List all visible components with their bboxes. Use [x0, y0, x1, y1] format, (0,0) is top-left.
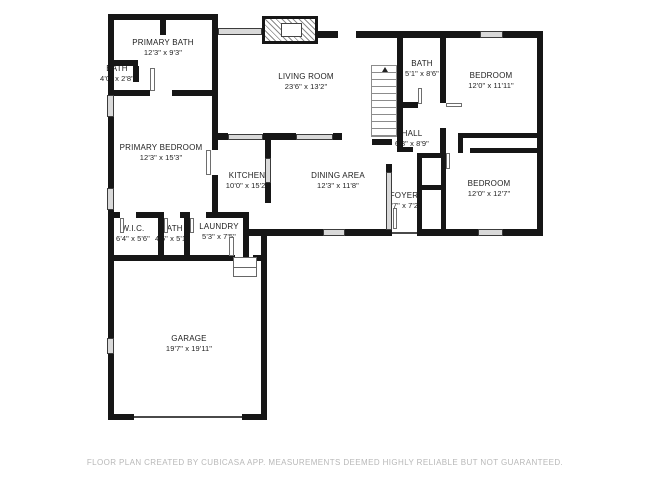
door-leaf	[190, 218, 194, 233]
wall	[537, 31, 543, 236]
garage-steps	[233, 257, 257, 277]
wall	[333, 133, 342, 140]
room-name: LAUNDRY	[199, 222, 239, 232]
wall	[265, 183, 271, 203]
wall	[372, 139, 392, 145]
room-label-bedroom-bottom-right: BEDROOM 12'0" x 12'7"	[468, 179, 511, 199]
window	[107, 188, 114, 210]
door-leaf	[120, 218, 124, 233]
room-dims: 10'0" x 15'2"	[226, 181, 268, 191]
room-label-living-room: LIVING ROOM 23'6" x 13'2"	[278, 72, 334, 92]
wall	[133, 66, 139, 82]
wall	[218, 133, 228, 140]
room-dims: 12'3" x 11'8"	[311, 181, 365, 191]
wall	[108, 90, 150, 96]
room-label-hall-bath: BATH 5'1" x 8'6"	[405, 59, 439, 79]
door-leaf	[446, 103, 462, 107]
wall	[397, 108, 403, 152]
garage-door-line	[134, 416, 242, 418]
staircase	[371, 65, 397, 137]
window	[386, 172, 392, 230]
door-leaf	[150, 68, 155, 91]
door-leaf	[418, 88, 422, 104]
room-name: PRIMARY BEDROOM	[120, 143, 203, 153]
door-leaf	[164, 218, 168, 233]
door-leaf	[229, 237, 234, 256]
window	[480, 31, 503, 38]
footer-disclaimer: FLOOR PLAN CREATED BY CUBICASA APP. MEAS…	[0, 458, 650, 467]
wall	[249, 229, 323, 236]
room-name: GARAGE	[166, 334, 212, 344]
room-dims: 4'0" x 2'8"	[100, 74, 134, 84]
wall	[160, 14, 166, 35]
wall	[318, 31, 338, 38]
room-label-garage: GARAGE 19'7" x 19'11"	[166, 334, 212, 354]
wall	[243, 212, 249, 261]
room-name: FOYER	[387, 191, 421, 201]
room-name: LIVING ROOM	[278, 72, 334, 82]
floor-plan: PRIMARY BATH 12'3" x 9'3" BATH 4'0" x 2'…	[0, 0, 650, 488]
window	[478, 229, 503, 236]
wall	[417, 153, 422, 236]
room-label-dining-area: DINING AREA 12'3" x 11'8"	[311, 171, 365, 191]
room-dims: 12'0" x 11'11"	[468, 81, 514, 91]
room-name: DINING AREA	[311, 171, 365, 181]
wall	[356, 31, 480, 38]
wall	[108, 255, 235, 261]
wall	[265, 140, 271, 158]
wall	[108, 117, 114, 188]
room-label-bath-small: BATH 4'0" x 2'8"	[100, 64, 134, 84]
room-dims: 12'3" x 9'3"	[132, 48, 194, 58]
room-name: BEDROOM	[468, 71, 514, 81]
window	[296, 134, 333, 140]
stairs-direction-arrow	[382, 67, 388, 72]
room-dims: 6'4" x 5'6"	[116, 234, 150, 244]
fireplace-flue	[281, 23, 302, 37]
wall	[397, 147, 413, 152]
room-name: BEDROOM	[468, 179, 511, 189]
window	[265, 158, 271, 183]
door-leaf	[446, 153, 450, 169]
wall	[261, 236, 267, 420]
room-dims: 23'6" x 13'2"	[278, 82, 334, 92]
room-name: KITCHEN	[226, 171, 268, 181]
room-dims: 12'3" x 15'3"	[120, 153, 203, 163]
room-label-bedroom-top-right: BEDROOM 12'0" x 11'11"	[468, 71, 514, 91]
wall	[212, 175, 218, 212]
wall	[108, 414, 134, 420]
entry-threshold	[392, 232, 417, 234]
wall	[417, 229, 478, 236]
room-label-kitchen: KITCHEN 10'0" x 15'2"	[226, 171, 268, 191]
room-dims: 12'0" x 12'7"	[468, 189, 511, 199]
wall	[108, 210, 114, 420]
room-dims: 5'1" x 8'6"	[405, 69, 439, 79]
wall	[345, 229, 392, 236]
room-label-primary-bedroom: PRIMARY BEDROOM 12'3" x 15'3"	[120, 143, 203, 163]
window	[228, 134, 263, 140]
wall	[470, 148, 543, 153]
door-leaf	[206, 150, 211, 175]
room-dims: 19'7" x 19'11"	[166, 344, 212, 354]
wall	[263, 133, 296, 140]
wall	[108, 14, 114, 95]
wall	[463, 133, 537, 138]
wall	[458, 133, 463, 153]
wall	[108, 212, 120, 218]
room-name: PRIMARY BATH	[132, 38, 194, 48]
door-leaf	[393, 208, 397, 229]
window	[107, 338, 114, 354]
room-label-primary-bath: PRIMARY BATH 12'3" x 9'3"	[132, 38, 194, 58]
window	[323, 229, 345, 236]
wall	[440, 31, 446, 103]
room-name: BATH	[405, 59, 439, 69]
window	[107, 95, 114, 117]
wall	[397, 35, 403, 102]
window	[218, 28, 262, 35]
